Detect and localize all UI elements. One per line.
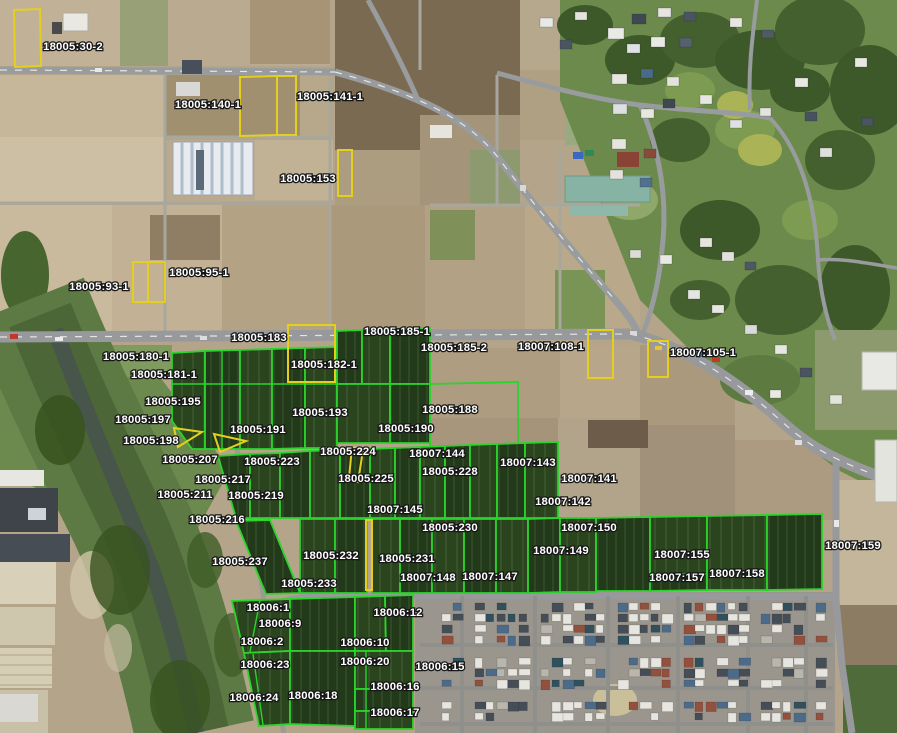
house [745,262,756,270]
terrain-layer [0,0,897,733]
house [585,669,592,677]
house [641,69,653,78]
house [453,614,463,620]
house [519,669,530,675]
house [667,77,679,86]
house [816,603,826,612]
house [552,680,559,687]
house [684,658,693,667]
house [596,625,603,633]
house [855,58,867,67]
parcel-label: 18005:233 [281,578,337,590]
house [695,702,703,712]
parcel-label: 18006:9 [259,618,302,630]
house [486,713,494,721]
parcel-label: 18005:228 [422,466,478,478]
house [644,149,656,158]
house [475,614,486,622]
house [684,625,696,634]
house [730,18,742,27]
house [684,12,696,21]
house [816,713,823,720]
house [618,614,628,622]
house [794,658,804,665]
parcel-label: 18007:143 [500,457,556,469]
house [618,636,629,645]
parcel-label: 18007:159 [825,540,881,552]
parcel-label: 18005:181-1 [131,369,197,381]
house [658,8,671,17]
house [794,713,806,722]
house [772,713,781,722]
house [641,109,654,118]
house [783,702,790,712]
house [816,636,827,642]
house [830,395,842,404]
house [552,603,563,612]
house [475,636,483,644]
parcel-label: 18006:24 [229,692,279,704]
parcel-label: 18005:230 [422,522,478,534]
parcel-label: 18005:182-1 [291,359,357,371]
house [508,702,519,711]
house [805,112,817,121]
house [772,680,782,686]
house [618,603,628,612]
house [700,95,712,104]
house [772,603,783,610]
house [618,680,629,689]
house [660,255,672,264]
house [695,658,703,667]
house [794,603,806,610]
house [563,680,575,689]
house [497,614,505,621]
parcel-label: 18007:150 [561,522,617,534]
house [761,713,770,721]
parcel-label: 18005:197 [115,414,171,426]
house [552,713,564,722]
house [745,325,757,334]
house [770,390,781,398]
house [728,680,739,686]
house [612,139,626,149]
house [761,680,773,688]
house [613,104,627,114]
house [717,603,725,612]
house [574,625,585,632]
parcel-label: 18007:155 [654,549,710,561]
house [640,658,649,668]
house [442,636,453,644]
house [783,713,791,719]
parcel-label: 18005:191 [230,424,286,436]
house [662,614,673,624]
house [629,658,638,665]
house [684,702,694,708]
house [651,669,661,676]
house [486,669,498,676]
house [794,702,806,708]
house [629,625,640,634]
house [560,40,572,49]
house [717,669,728,677]
house [519,658,531,665]
parcel-label: 18007:157 [649,572,705,584]
house [695,680,704,686]
parcel-label: 18005:232 [303,550,359,562]
parcel-outline-green[interactable] [497,443,525,518]
house [706,702,716,712]
parcel-label: 18005:185-2 [421,342,487,354]
parcel-label: 18005:237 [212,556,268,568]
house [717,636,725,643]
house [519,625,528,632]
parcel-label: 18006:23 [240,659,289,671]
house [739,669,750,676]
house [574,702,582,708]
house [695,625,704,631]
parcel-label: 18005:190 [378,423,434,435]
parcel-label: 18005:195 [145,396,201,408]
house [651,37,665,47]
house [728,625,739,634]
house [728,614,738,621]
house [585,702,597,709]
house [640,625,647,633]
house [629,669,640,677]
house [706,625,715,634]
house [552,658,563,667]
house [585,713,592,721]
house [662,658,671,667]
house [695,603,703,611]
parcel-label: 18005:216 [189,514,245,526]
house [541,636,551,645]
house [475,702,486,709]
house [783,603,792,611]
parcel-outline-green[interactable] [470,444,497,518]
house [640,614,649,620]
house [541,669,549,677]
house [772,702,780,708]
house [739,680,748,686]
house [783,658,793,667]
house [695,669,705,678]
house [629,614,638,622]
house [632,14,646,24]
house [695,614,707,621]
parcel-label: 18005:198 [123,435,179,447]
house [717,702,728,708]
parcel-label: 18006:1 [247,602,290,614]
house [739,636,748,643]
house [684,669,696,678]
parcel-label: 18005:223 [244,456,300,468]
parcel-label: 18005:30-2 [43,41,103,53]
house [772,614,782,624]
house [475,713,483,720]
house [684,636,694,645]
parcel-label: 18005:141-1 [297,91,363,103]
parcel-label: 18006:18 [288,690,337,702]
house [497,603,506,610]
house [640,603,649,609]
house [630,250,641,258]
parcel-label: 18005:219 [228,490,284,502]
parcel-label: 18005:217 [195,474,251,486]
house [728,702,736,708]
map-viewport: 18005:30-218005:140-118005:141-118005:15… [0,0,897,733]
parcel-label: 18007:144 [409,448,465,460]
house [728,713,736,722]
parcel-label: 18006:20 [340,656,389,668]
house [497,669,505,677]
parcel-label: 18007:147 [462,571,518,583]
house [612,74,627,84]
house [739,603,747,611]
house [475,680,483,686]
house [563,658,572,665]
house [596,614,604,621]
house [552,614,561,621]
house [519,614,527,622]
house [712,305,724,313]
house [728,603,735,610]
parcel-outline-green[interactable] [767,514,822,590]
house [442,680,451,686]
house [775,345,787,354]
parcel-outline-green[interactable] [650,516,707,575]
house [563,669,570,676]
parcel-label: 18006:2 [241,636,284,648]
house [730,120,742,128]
house [800,368,812,377]
house [574,636,583,644]
parcel-label: 18006:12 [373,607,422,619]
house [761,702,773,710]
house [739,658,751,665]
house [563,636,573,643]
parcel-label: 18007:149 [533,545,589,557]
house [497,680,507,689]
parcel-label: 18007:105-1 [670,347,736,359]
parcel-label: 18005:207 [162,454,218,466]
house [795,78,808,87]
parcel-label: 18007:142 [535,496,591,508]
parcel-outline-green[interactable] [310,450,340,518]
house [453,603,461,611]
house [486,614,494,622]
house [563,625,573,631]
house [722,252,734,261]
house [552,702,561,712]
house [475,658,482,668]
house [717,658,728,665]
parcel-label: 18006:16 [370,681,419,693]
house [728,636,739,646]
parcel-label: 18005:188 [422,404,478,416]
house [596,702,606,709]
house [508,680,519,688]
house [563,713,574,721]
house [684,614,694,621]
house [651,614,658,621]
house [662,625,671,632]
house [820,148,832,157]
house [442,702,452,709]
house [585,625,594,633]
parcel-label: 18005:93-1 [69,281,129,293]
house [816,658,827,668]
parcel-outline-green[interactable] [337,330,362,384]
house [684,680,696,686]
house [762,30,774,38]
house [442,713,449,721]
house [585,658,596,664]
parcel-label: 18005:231 [379,553,435,565]
house [816,702,826,709]
house [475,603,485,610]
house [497,636,505,642]
house [442,614,451,621]
house [610,170,623,179]
house [497,658,507,667]
house [629,603,638,610]
house [442,625,452,633]
parcel-label: 18005:180-1 [103,351,169,363]
house [706,614,717,620]
house [596,636,605,643]
greenhouse-building [173,142,253,195]
house [651,636,660,643]
house [662,702,673,712]
house [662,680,670,688]
house [640,178,652,187]
house [475,625,486,632]
house [706,603,716,611]
house [816,669,828,677]
house [486,702,493,710]
house [585,614,596,621]
house [760,108,771,116]
house [663,99,675,108]
house [497,702,509,709]
parcel-label: 18007:141 [561,473,617,485]
house [541,680,550,690]
house [794,636,805,644]
parcel-label: 18007:108-1 [518,341,584,353]
house [761,614,770,624]
house [508,636,515,645]
house [540,18,553,27]
house [574,603,585,611]
house [618,625,628,633]
house [596,713,605,719]
house [640,669,651,676]
house [596,669,605,678]
house [783,614,790,623]
house [519,636,530,646]
house [508,669,517,676]
parcel-label: 18005:95-1 [169,267,229,279]
house [629,702,638,710]
house [728,669,740,679]
house [651,658,661,667]
house [772,625,782,632]
parcel-label: 18006:17 [370,707,419,719]
house [541,625,553,633]
house [574,680,584,686]
house [608,28,624,39]
house [585,636,596,646]
parcel-label: 18005:140-1 [175,99,241,111]
parcel-label: 18005:193 [292,407,348,419]
house [684,603,691,613]
house [563,702,574,710]
house [816,614,825,621]
parcel-label: 18006:15 [415,661,464,673]
house [739,713,751,721]
house [519,702,527,711]
house [688,290,700,299]
house [519,680,530,690]
house [772,658,781,667]
parcel-label: 18005:185-1 [364,326,430,338]
house [662,669,669,677]
house [541,614,548,622]
house [680,38,692,47]
house [475,669,484,677]
house [627,44,640,53]
parcel-label: 18005:183 [231,332,287,344]
house [794,669,804,678]
house [651,625,660,632]
house [717,614,729,621]
parcel-label: 18005:211 [157,489,212,501]
house [816,680,826,688]
house [695,636,705,645]
house [739,625,749,632]
house [862,118,873,126]
house [585,603,593,609]
house [651,713,658,720]
house [695,713,702,720]
house [508,614,515,622]
map-canvas[interactable]: 18005:30-218005:140-118005:141-118005:15… [0,0,897,733]
parcel-label: 18005:225 [338,473,394,485]
parcel-label: 18007:148 [400,572,456,584]
house [700,238,712,247]
house [717,625,726,634]
house [497,625,509,633]
house [651,603,660,610]
parcel-label: 18006:10 [340,637,389,649]
house [563,614,571,624]
parcel-label: 18005:224 [320,446,376,458]
house [629,636,641,644]
house [575,12,587,20]
house [783,669,795,676]
house [640,702,652,709]
parcel-label: 18007:145 [367,504,423,516]
parcel-label: 18007:158 [709,568,765,580]
parcel-label: 18005:153 [280,173,336,185]
house [794,625,803,635]
house [761,636,772,643]
house [739,614,750,621]
